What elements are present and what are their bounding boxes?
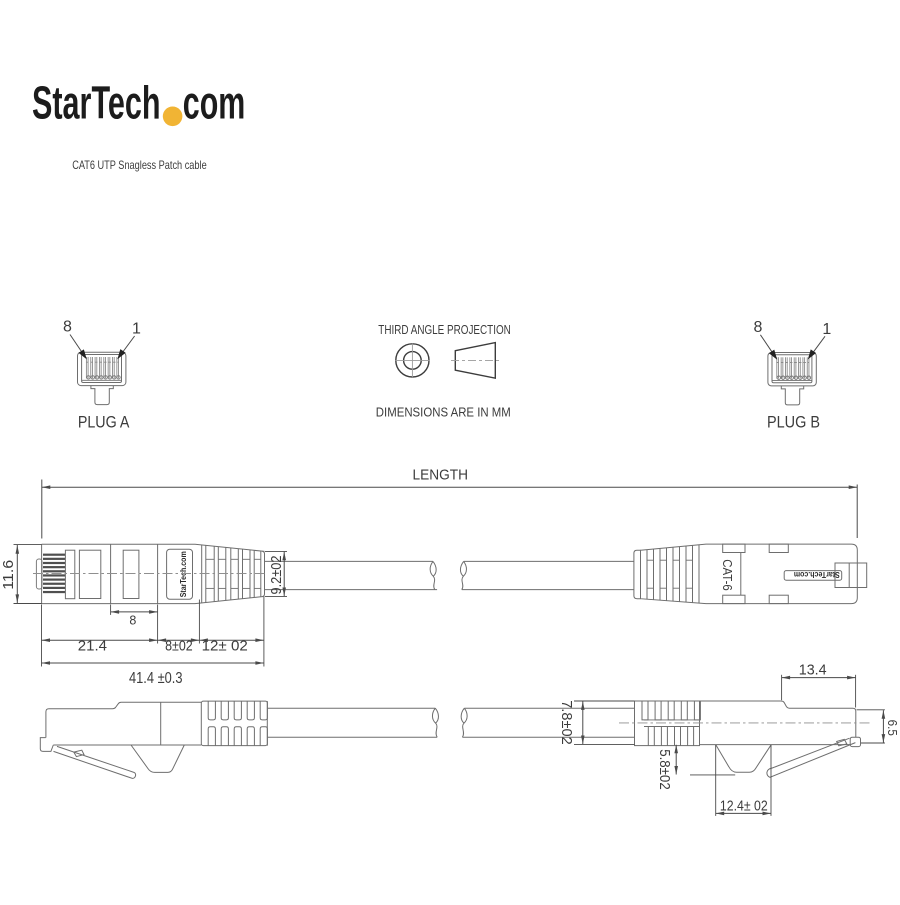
svg-text:THIRD ANGLE PROJECTION: THIRD ANGLE PROJECTION [378,323,511,337]
svg-text:StarTech.com: StarTech.com [178,551,188,597]
svg-text:8: 8 [63,319,72,336]
svg-text:12± 02: 12± 02 [202,638,248,655]
svg-text:StarTech.com: StarTech.com [794,570,840,580]
svg-text:7.8±02: 7.8±02 [558,700,574,745]
svg-text:9.2±02: 9.2±02 [269,556,285,595]
svg-text:13.4: 13.4 [799,663,827,679]
svg-text:CAT-6: CAT-6 [720,559,734,591]
svg-text:8: 8 [753,319,762,336]
svg-text:PLUG A: PLUG A [78,413,130,431]
svg-text:5.8±02: 5.8±02 [656,749,672,790]
svg-text:21.4: 21.4 [78,638,107,655]
svg-text:8±02: 8±02 [165,638,193,655]
svg-text:com: com [183,77,246,129]
svg-text:8: 8 [129,613,136,627]
svg-text:DIMENSIONS ARE IN MM: DIMENSIONS ARE IN MM [376,406,511,420]
svg-text:StarTech: StarTech [32,77,161,129]
svg-text:LENGTH: LENGTH [413,466,469,483]
svg-text:1: 1 [822,321,831,338]
svg-text:1: 1 [132,321,141,338]
svg-text:6.5: 6.5 [885,720,900,736]
svg-text:CAT6 UTP Snagless Patch cable: CAT6 UTP Snagless Patch cable [72,159,207,172]
svg-text:11.6: 11.6 [0,560,17,590]
svg-text:41.4 ±0.3: 41.4 ±0.3 [129,670,183,687]
svg-text:PLUG B: PLUG B [767,414,820,432]
svg-text:12.4± 02: 12.4± 02 [720,799,768,815]
